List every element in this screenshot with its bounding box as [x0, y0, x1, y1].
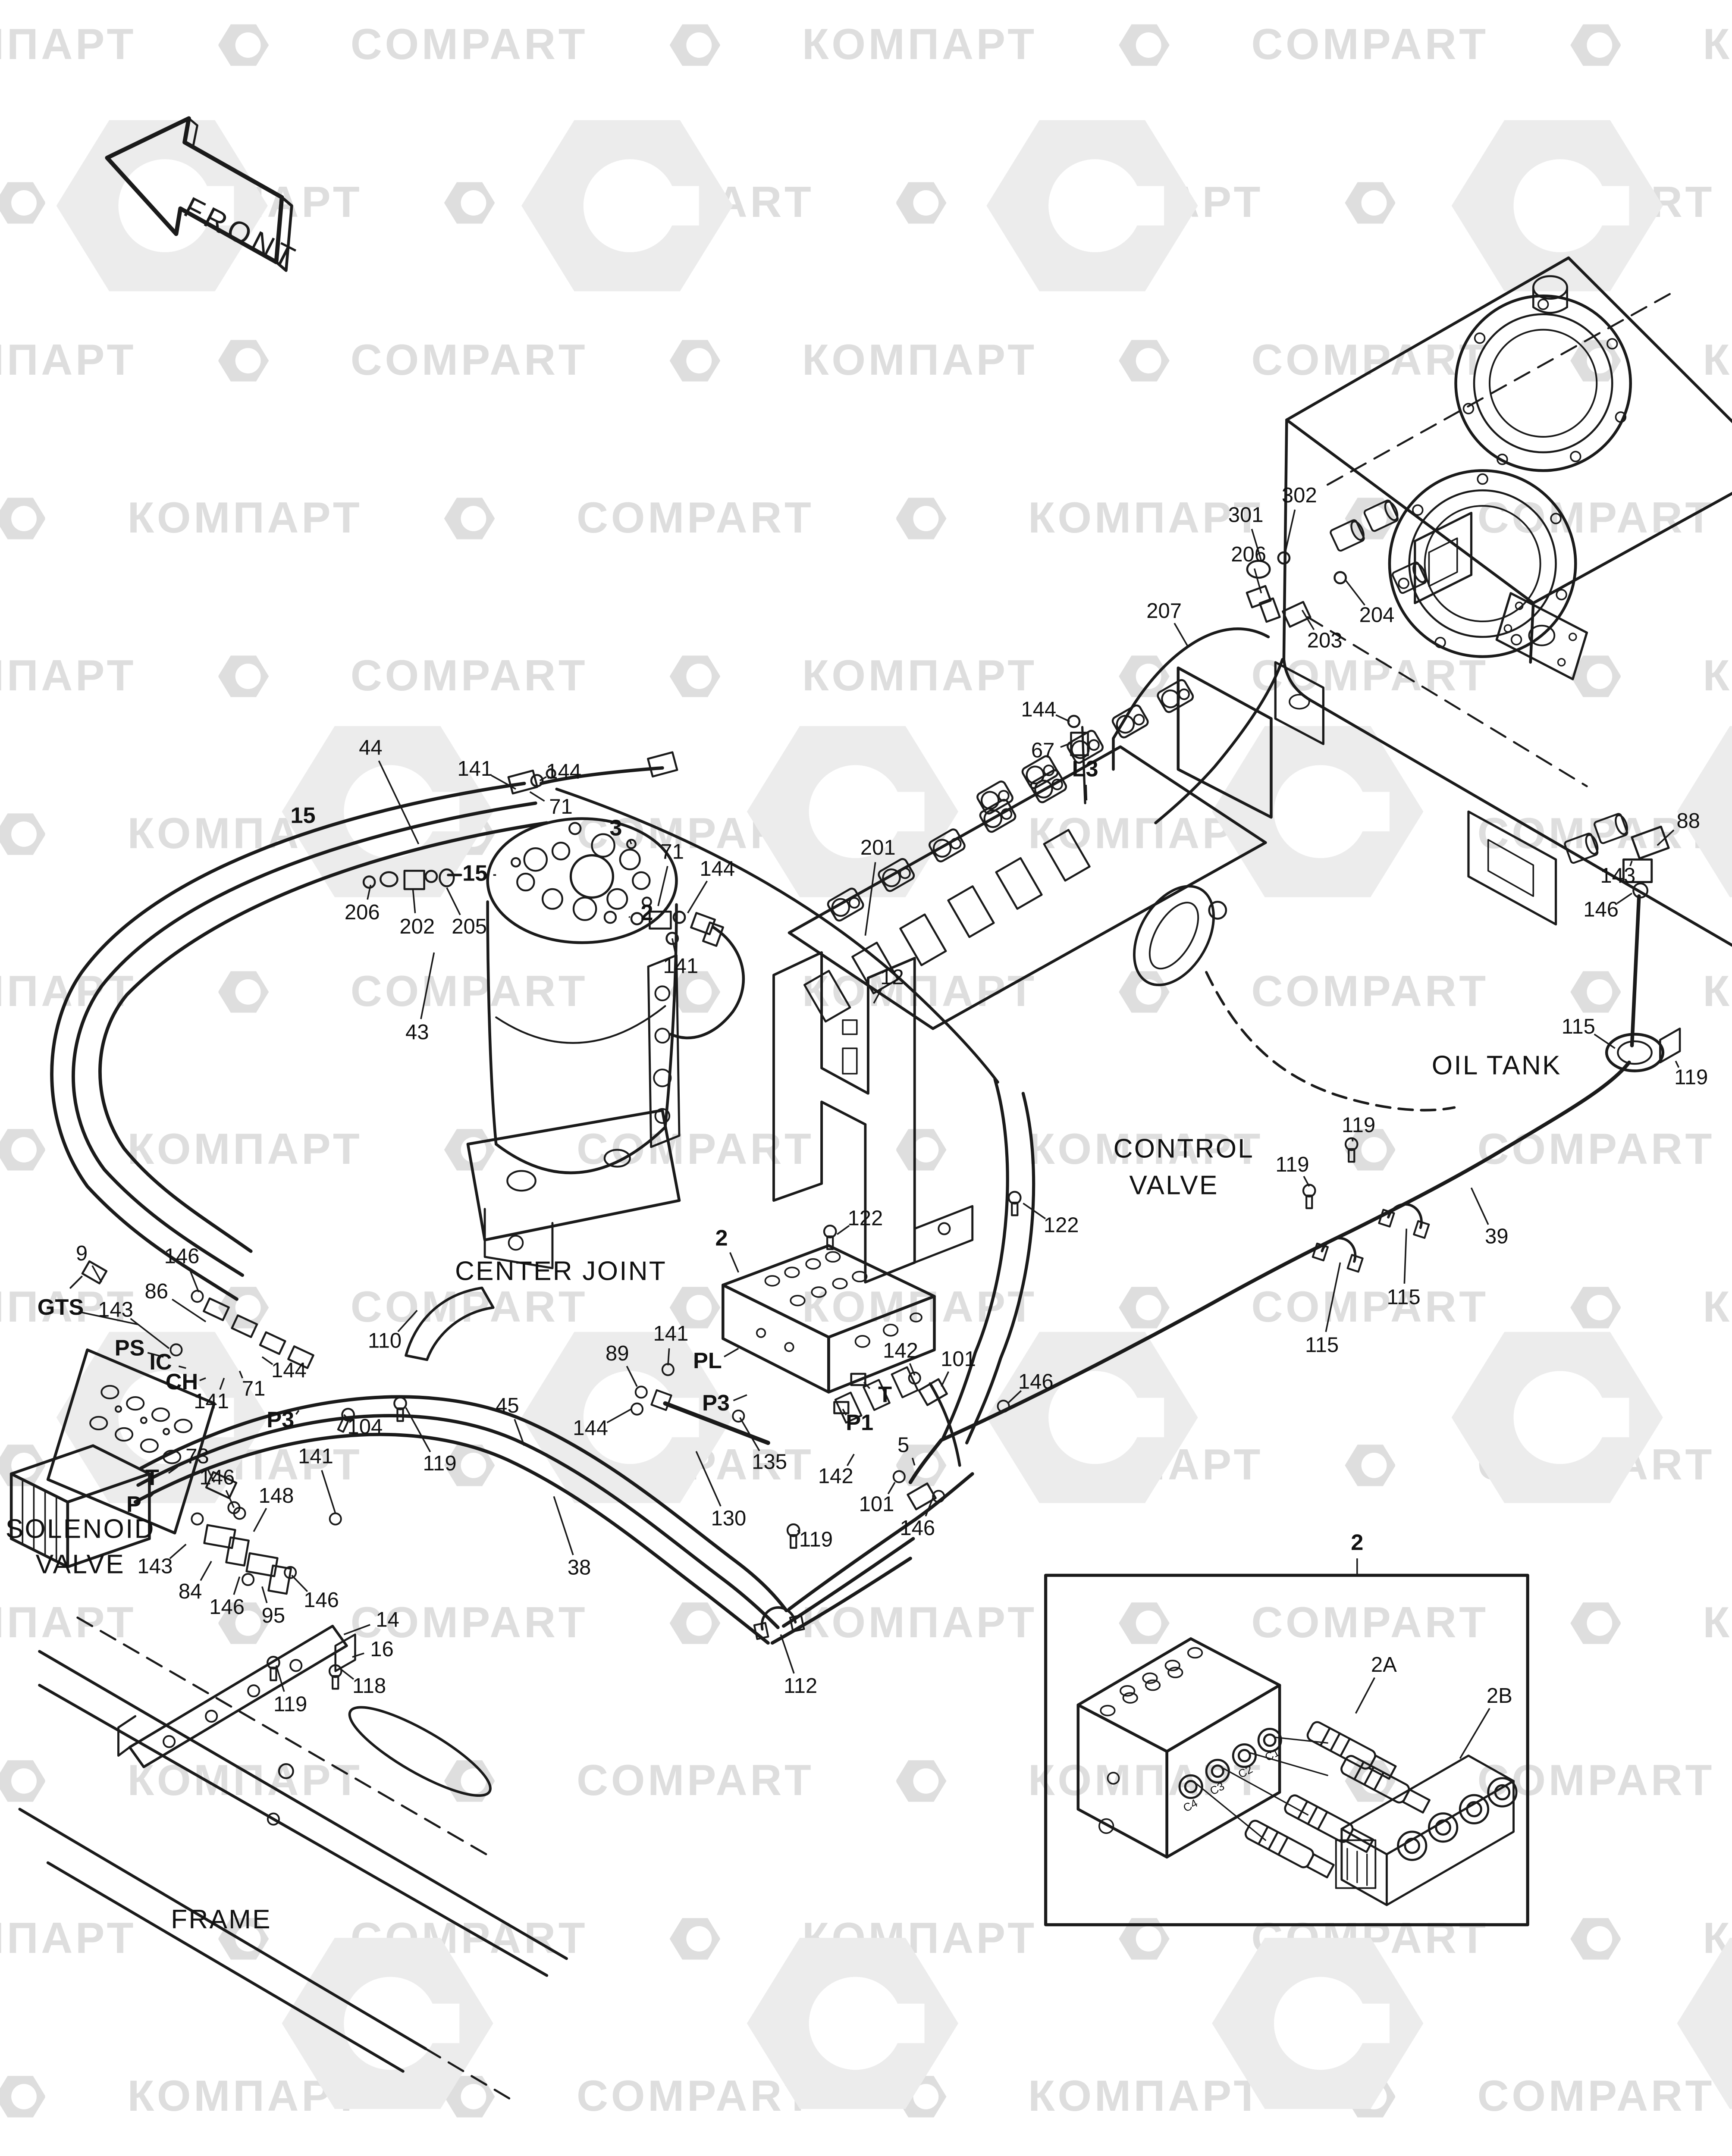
component-label-oil-tank: OIL TANK — [1432, 1053, 1562, 1080]
leader-line-142 — [910, 1363, 915, 1375]
callout-71: 71 — [242, 1379, 266, 1400]
leader-line-12 — [874, 989, 882, 1003]
callout-38: 38 — [568, 1557, 591, 1579]
leader-line-110 — [398, 1310, 417, 1332]
callout-146: 146 — [900, 1518, 935, 1539]
callout-45: 45 — [496, 1396, 519, 1417]
leader-line-144 — [688, 881, 707, 913]
leader-line-141 — [322, 1470, 336, 1514]
callout-P3: P3 — [702, 1394, 730, 1416]
callout-L3: L3 — [1072, 759, 1098, 782]
callout-141: 141 — [194, 1391, 229, 1413]
leader-line-2B — [1460, 1708, 1490, 1758]
callout-141: 141 — [298, 1446, 333, 1467]
leader-line-14 — [344, 1625, 370, 1635]
callout-115: 115 — [1387, 1287, 1421, 1308]
component-label-valve: VALVE — [1129, 1173, 1218, 1200]
leader-line-67 — [1061, 743, 1073, 747]
callout-206: 206 — [345, 903, 380, 924]
callout-119: 119 — [273, 1694, 307, 1715]
leader-line-205 — [447, 888, 460, 915]
callout-143: 143 — [98, 1300, 133, 1321]
callout-207: 207 — [1146, 601, 1182, 622]
leader-line-IC — [179, 1366, 186, 1368]
callout-119: 119 — [799, 1529, 833, 1551]
leader-line-207 — [1174, 623, 1188, 647]
callout-205: 205 — [452, 917, 487, 938]
leader-line-P3 — [296, 1410, 298, 1414]
leader-line-144 — [1056, 715, 1070, 721]
leader-line-84 — [201, 1561, 211, 1581]
leader-line-16 — [352, 1653, 364, 1657]
leader-line-88 — [1657, 830, 1674, 846]
leader-line-146 — [1617, 893, 1632, 904]
callout-144: 144 — [1021, 699, 1056, 721]
leader-line-144 — [540, 777, 546, 781]
callout-142: 142 — [883, 1341, 918, 1362]
leader-line-122 — [1023, 1203, 1045, 1219]
leader-line-89 — [627, 1366, 637, 1386]
callout-5: 5 — [897, 1435, 909, 1456]
callout-130: 130 — [711, 1508, 747, 1529]
leader-line-P3 — [733, 1395, 747, 1401]
callout-202: 202 — [399, 917, 435, 938]
callout-71: 71 — [549, 797, 573, 818]
callout-2: 2 — [1351, 1533, 1363, 1555]
leader-line-302 — [1285, 510, 1295, 552]
callout-2A: 2A — [1371, 1655, 1397, 1676]
callout-112: 112 — [784, 1676, 817, 1697]
callout-9: 9 — [76, 1244, 88, 1265]
callout-146: 146 — [209, 1597, 245, 1618]
callout-118: 118 — [352, 1676, 386, 1697]
leader-line-71 — [658, 866, 668, 906]
leader-line-135 — [740, 1417, 759, 1451]
leader-line-148 — [254, 1508, 266, 1532]
leader-line-112 — [781, 1635, 794, 1673]
callout-12: 12 — [880, 967, 904, 988]
leader-line-146 — [190, 1269, 199, 1292]
leader-line-202 — [413, 889, 415, 913]
leader-line-95 — [262, 1586, 267, 1603]
leader-line-204 — [1346, 580, 1365, 605]
callout-122: 122 — [1044, 1215, 1079, 1236]
callout-204: 204 — [1359, 605, 1395, 626]
leader-line-206 — [1255, 568, 1261, 593]
callout-PS: PS — [115, 1338, 145, 1361]
callout-141: 141 — [457, 759, 493, 780]
callout-67: 67 — [1031, 740, 1055, 761]
callout-143: 143 — [138, 1556, 173, 1577]
callout-146: 146 — [1583, 899, 1619, 921]
callout-146: 146 — [304, 1590, 339, 1611]
leader-line-71 — [530, 792, 545, 801]
leader-line-CH — [200, 1378, 206, 1381]
leader-line-3 — [629, 840, 631, 844]
callout-P: P — [126, 1495, 141, 1517]
component-label-valve: VALVE — [36, 1552, 125, 1579]
callout-P3: P3 — [267, 1410, 294, 1433]
callout-T: T — [145, 1468, 159, 1491]
callout-144: 144 — [573, 1418, 608, 1439]
leader-line-203 — [1302, 610, 1314, 630]
callout-71: 71 — [660, 842, 684, 863]
diagram-page: КОМПАРТCOMPARTКОМПАРТCOMPARTКОМПАРТCOMPA… — [0, 0, 1732, 2156]
leader-line-86 — [172, 1299, 206, 1322]
leader-line-141 — [672, 938, 675, 953]
callout-141: 141 — [663, 956, 698, 977]
callout-119: 119 — [1674, 1067, 1708, 1088]
leader-line-PL — [724, 1348, 738, 1357]
callout-141: 141 — [653, 1324, 689, 1345]
callout-148: 148 — [259, 1486, 294, 1507]
callout-144: 144 — [546, 761, 581, 783]
callout-146: 146 — [1018, 1372, 1054, 1393]
callout-119: 119 — [423, 1454, 456, 1475]
callout-101: 101 — [941, 1349, 976, 1370]
leader-line-44 — [379, 761, 418, 844]
callout-115: 115 — [1305, 1335, 1339, 1356]
leader-line-201 — [865, 862, 875, 935]
leader-line-9 — [92, 1266, 101, 1282]
callout-203: 203 — [1307, 630, 1343, 652]
callout-15: 15 — [462, 864, 487, 886]
callout-88: 88 — [1676, 811, 1700, 832]
component-label-solenoid: SOLENOID — [6, 1517, 155, 1544]
leader-line-142 — [847, 1454, 854, 1466]
leader-line-146 — [926, 1498, 933, 1517]
callout-CH: CH — [166, 1373, 198, 1395]
leader-line-119 — [276, 1665, 284, 1692]
leader-line-119 — [1352, 1139, 1353, 1141]
callout-43: 43 — [405, 1022, 429, 1044]
leader-line-T — [864, 1382, 870, 1389]
callout-PL: PL — [693, 1351, 722, 1374]
leader-line-206 — [367, 885, 370, 899]
leader-line-141 — [491, 775, 516, 789]
callout-2: 2 — [640, 903, 653, 926]
callout-301: 301 — [1228, 505, 1264, 526]
leader-line-144 — [607, 1409, 631, 1423]
callout-39: 39 — [1485, 1227, 1509, 1248]
callout-143: 143 — [1600, 866, 1635, 887]
leader-line-115 — [1594, 1034, 1615, 1048]
callout-110: 110 — [368, 1331, 402, 1352]
leader-line-101 — [888, 1482, 895, 1494]
leader-line-115 — [1326, 1263, 1340, 1332]
callout-101: 101 — [859, 1494, 894, 1515]
component-label-frame: FRAME — [171, 1907, 272, 1934]
callout-119: 119 — [1275, 1155, 1309, 1176]
callout-15: 15 — [290, 806, 315, 828]
callout-95: 95 — [262, 1606, 286, 1627]
callout-135: 135 — [752, 1452, 787, 1473]
callout-206: 206 — [1231, 545, 1266, 566]
leader-line-L3 — [1086, 785, 1086, 800]
leader-line-118 — [340, 1668, 354, 1679]
callout-GTS: GTS — [38, 1298, 84, 1320]
callout-2B: 2B — [1487, 1686, 1512, 1707]
leader-line-141 — [668, 1348, 669, 1365]
leader-line-101 — [941, 1372, 949, 1386]
leader-line-146 — [226, 1490, 234, 1507]
callout-144: 144 — [700, 859, 735, 880]
component-label-control: CONTROL — [1114, 1136, 1254, 1163]
callout-144: 144 — [271, 1360, 307, 1382]
callout-P1: P1 — [846, 1413, 873, 1436]
leader-line-141 — [220, 1378, 224, 1390]
callout-142: 142 — [818, 1466, 853, 1487]
leader-line-5 — [913, 1458, 915, 1465]
leader-line-2 — [629, 917, 630, 917]
leader-line-38 — [554, 1496, 573, 1555]
leader-line-T — [169, 1467, 178, 1473]
callout-3: 3 — [609, 819, 622, 841]
callout-84: 84 — [179, 1582, 202, 1603]
callout-122: 122 — [847, 1208, 883, 1229]
callout-302: 302 — [1282, 486, 1317, 507]
callout-201: 201 — [860, 838, 896, 859]
callout-14: 14 — [376, 1610, 399, 1631]
callout-104: 104 — [347, 1417, 383, 1438]
leader-line-115 — [1404, 1228, 1406, 1283]
callout-16: 16 — [370, 1639, 394, 1661]
leader-line-119 — [406, 1407, 430, 1452]
leader-line-39 — [1471, 1188, 1488, 1225]
leader-line-119 — [1304, 1176, 1309, 1186]
callout-115: 115 — [1562, 1017, 1595, 1038]
leader-line-130 — [696, 1451, 721, 1506]
callout-89: 89 — [606, 1344, 629, 1365]
callout-146: 146 — [199, 1467, 235, 1489]
callout-44: 44 — [359, 738, 383, 759]
leader-line-146 — [234, 1577, 239, 1595]
leader-line-45 — [515, 1419, 524, 1445]
component-label-center-joint: CENTER JOINT — [455, 1259, 667, 1286]
callout-T: T — [878, 1385, 892, 1407]
callout-86: 86 — [144, 1282, 168, 1303]
leader-line-43 — [421, 953, 434, 1019]
leader-line-2 — [730, 1253, 739, 1272]
leader-line-2A — [1356, 1678, 1375, 1714]
callout-2: 2 — [715, 1228, 728, 1251]
callout-119: 119 — [1342, 1115, 1375, 1136]
callout-146: 146 — [164, 1246, 200, 1267]
callout-73: 73 — [185, 1446, 209, 1467]
